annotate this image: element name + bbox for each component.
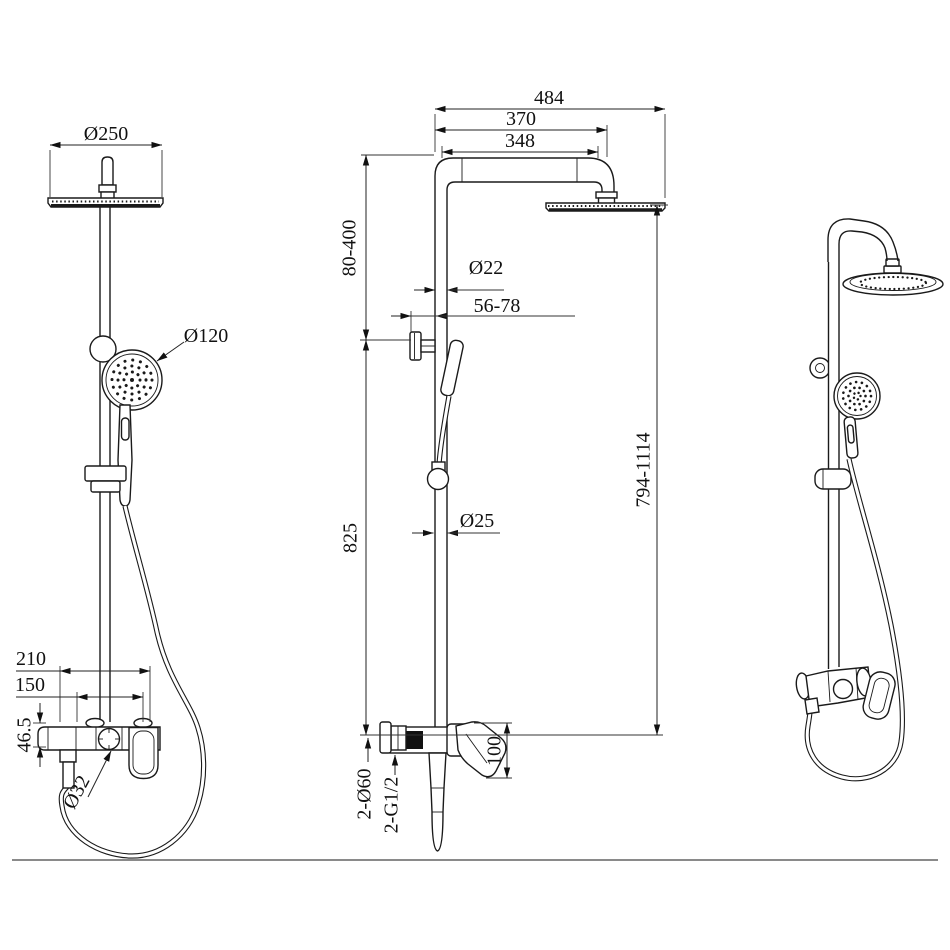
front-overhead-shower [48,157,163,207]
side-wall-bracket [410,332,435,360]
side-slider-ring [428,469,449,490]
persp-diverter-knob [834,680,853,699]
dim-valve-height: 46.5 [14,718,36,753]
front-view: Ø250 Ø120 210 150 46.5 Ø32 [14,123,229,856]
front-shower-rail [100,207,110,722]
dim-inlet-spacing: 150 [15,674,45,696]
persp-hand-shower [815,373,880,489]
front-handle-button [122,418,130,440]
side-column-and-arm [435,158,665,727]
dim-valve-width: 210 [16,648,46,670]
dim-overall-height-range: 794-1114 [633,432,655,507]
dim-lower-pipe-length: 825 [340,523,362,553]
persp-mixer-valve [795,667,898,721]
front-mixer-valve [38,719,160,789]
dim-lower-pipe-diameter: Ø25 [460,510,494,532]
side-view: 484 370 348 80-400 825 794-1114 Ø22 [339,87,668,851]
front-head-connector-pipe [102,157,113,185]
front-slider-bracket [85,466,126,481]
persp-slider-bracket [815,469,851,489]
persp-shower-hose [807,459,902,779]
persp-overhead-shower [843,259,943,295]
dim-wall-clearance: 56-78 [474,295,521,317]
dim-handle-drop: 100 [484,736,506,766]
dim-hand-shower-diameter: Ø120 [184,325,228,347]
label-escutcheons: 2-Ø60 [354,768,376,819]
persp-wall-bracket [810,358,830,378]
dim-arm-depth: 370 [506,108,536,130]
front-hose-connector [60,750,76,762]
dim-upper-pipe-range: 80-400 [339,220,361,277]
label-connections: 2-G1/2 [381,777,403,834]
dim-overhead-diameter: Ø250 [84,123,128,145]
drawing-sheet: Ø250 Ø120 210 150 46.5 Ø32 [0,0,950,950]
dim-arm-length: 348 [505,130,535,152]
technical-drawing-svg: Ø250 Ø120 210 150 46.5 Ø32 [0,0,950,950]
side-hanging-spout [429,753,446,851]
front-hand-shower [85,336,162,506]
perspective-view [795,219,943,779]
dim-overall-depth: 484 [534,87,564,109]
dim-upper-pipe-diameter: Ø22 [469,257,503,279]
persp-hand-shower-face [834,373,880,419]
side-wall-escutcheon [380,722,391,753]
